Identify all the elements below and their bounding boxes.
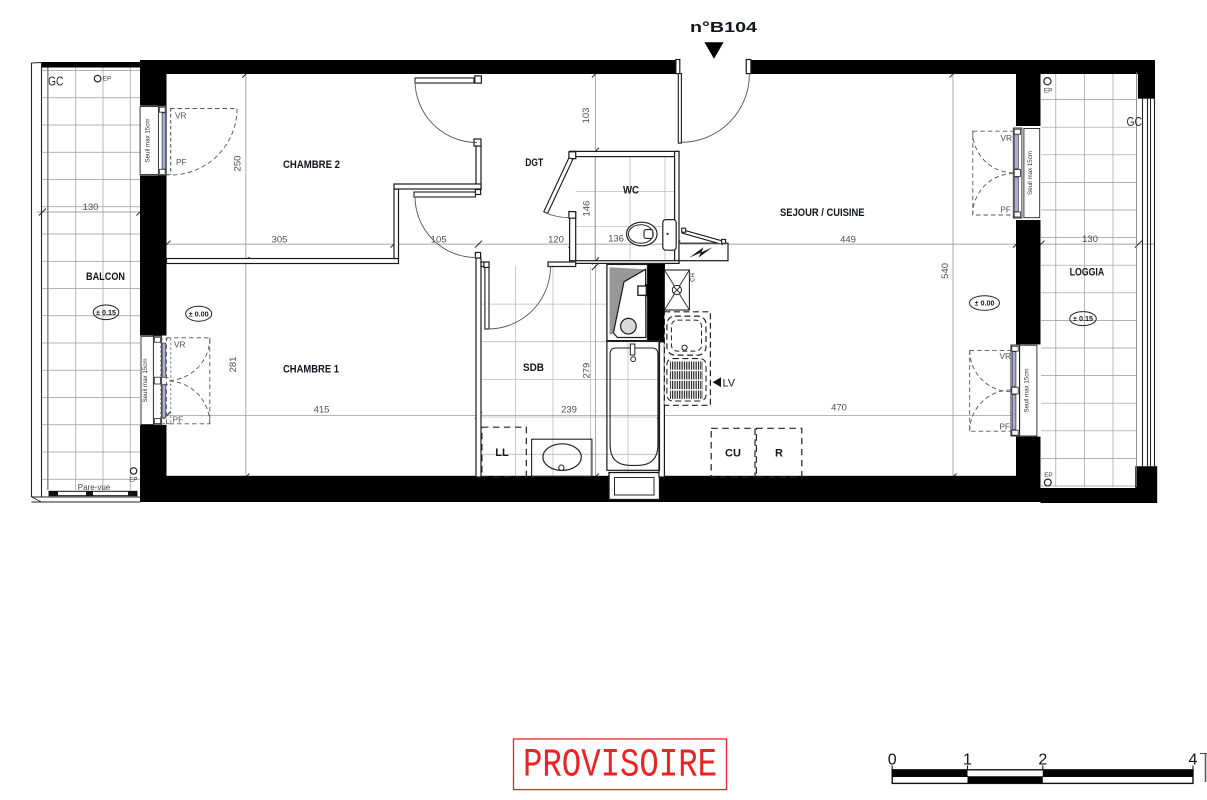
svg-text:EP: EP bbox=[129, 477, 137, 484]
svg-text:239: 239 bbox=[561, 405, 577, 416]
svg-text:PF: PF bbox=[1000, 205, 1011, 215]
svg-text:PROVISOIRE: PROVISOIRE bbox=[523, 744, 717, 789]
svg-text:± 0.15: ± 0.15 bbox=[1073, 314, 1093, 323]
svg-text:GC: GC bbox=[48, 75, 64, 89]
svg-text:LV: LV bbox=[723, 378, 736, 390]
svg-text:VR: VR bbox=[174, 340, 186, 350]
svg-text:130: 130 bbox=[1082, 234, 1098, 245]
svg-text:105: 105 bbox=[431, 235, 447, 246]
svg-text:GC: GC bbox=[1127, 115, 1143, 129]
svg-text:VR: VR bbox=[999, 351, 1011, 361]
svg-text:Seuil max 15cm: Seuil max 15cm bbox=[144, 118, 151, 162]
svg-text:EP: EP bbox=[103, 76, 111, 83]
svg-text:250: 250 bbox=[233, 156, 244, 172]
svg-text:CHAMBRE 2: CHAMBRE 2 bbox=[283, 159, 340, 171]
svg-text:Seuil max 15cm: Seuil max 15cm bbox=[1027, 151, 1034, 195]
svg-text:SEJOUR / CUISINE: SEJOUR / CUISINE bbox=[780, 207, 865, 219]
svg-text:146: 146 bbox=[581, 201, 592, 217]
svg-text:± 0.00: ± 0.00 bbox=[975, 299, 995, 308]
svg-text:CU: CU bbox=[725, 448, 741, 460]
svg-text:415: 415 bbox=[314, 405, 330, 416]
svg-text:LL: LL bbox=[495, 447, 509, 459]
svg-text:PF: PF bbox=[173, 414, 184, 424]
svg-text:Seuil max 15cm: Seuil max 15cm bbox=[142, 358, 149, 402]
svg-text:PF: PF bbox=[176, 157, 187, 167]
svg-text:EP: EP bbox=[1044, 88, 1052, 95]
svg-text:Pare-vue: Pare-vue bbox=[78, 483, 111, 492]
svg-text:DGT: DGT bbox=[525, 157, 543, 169]
svg-text:136: 136 bbox=[608, 233, 624, 244]
svg-text:EP: EP bbox=[1044, 472, 1052, 479]
svg-text:SDB: SDB bbox=[523, 362, 544, 374]
svg-text:CHAMBRE 1: CHAMBRE 1 bbox=[283, 364, 339, 376]
svg-text:120: 120 bbox=[548, 235, 564, 246]
svg-text:n°B104: n°B104 bbox=[690, 20, 757, 36]
svg-text:470: 470 bbox=[831, 403, 847, 414]
svg-text:± 0.15: ± 0.15 bbox=[96, 308, 116, 317]
svg-text:BALCON: BALCON bbox=[86, 271, 125, 283]
svg-text:PF: PF bbox=[999, 422, 1010, 432]
svg-text:279: 279 bbox=[581, 363, 592, 379]
svg-text:R: R bbox=[775, 448, 783, 460]
svg-text:103: 103 bbox=[581, 108, 592, 124]
svg-text:WC: WC bbox=[623, 185, 639, 197]
svg-text:Seuil max 15cm: Seuil max 15cm bbox=[1023, 368, 1030, 412]
svg-text:CH: CH bbox=[691, 273, 697, 282]
svg-text:130: 130 bbox=[83, 202, 99, 213]
svg-text:449: 449 bbox=[840, 235, 856, 246]
svg-text:VR: VR bbox=[1000, 133, 1012, 143]
svg-text:281: 281 bbox=[228, 357, 239, 373]
svg-text:± 0.00: ± 0.00 bbox=[189, 309, 209, 318]
svg-text:LOGGIA: LOGGIA bbox=[1070, 266, 1105, 278]
svg-text:305: 305 bbox=[272, 235, 288, 246]
svg-text:540: 540 bbox=[940, 263, 951, 279]
svg-text:VR: VR bbox=[175, 111, 187, 121]
